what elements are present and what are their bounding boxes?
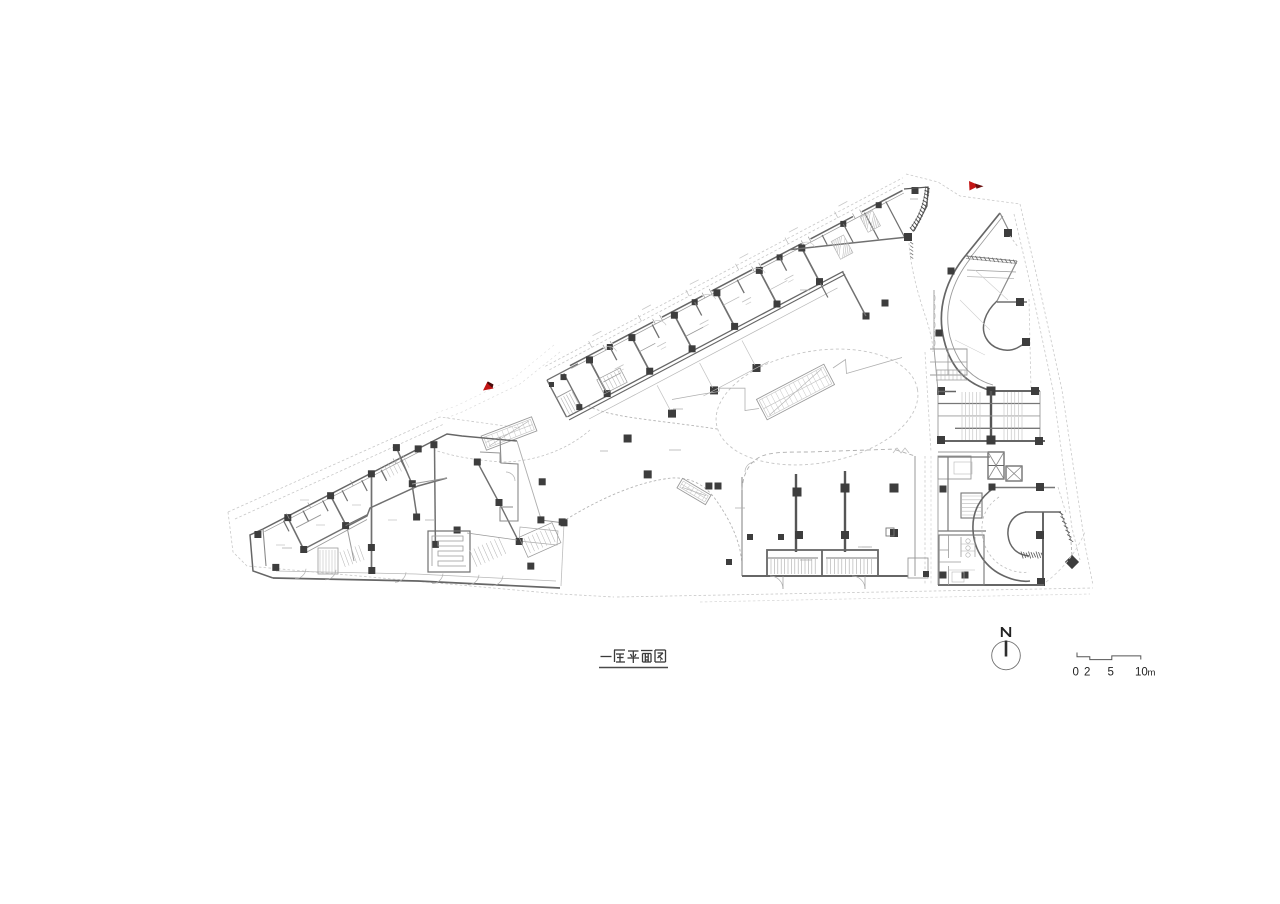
svg-text:2: 2 (1084, 667, 1090, 679)
svg-text:5: 5 (1108, 667, 1114, 679)
svg-text:m: m (1148, 668, 1156, 679)
svg-text:0: 0 (1073, 667, 1079, 679)
svg-text:10: 10 (1135, 667, 1148, 679)
